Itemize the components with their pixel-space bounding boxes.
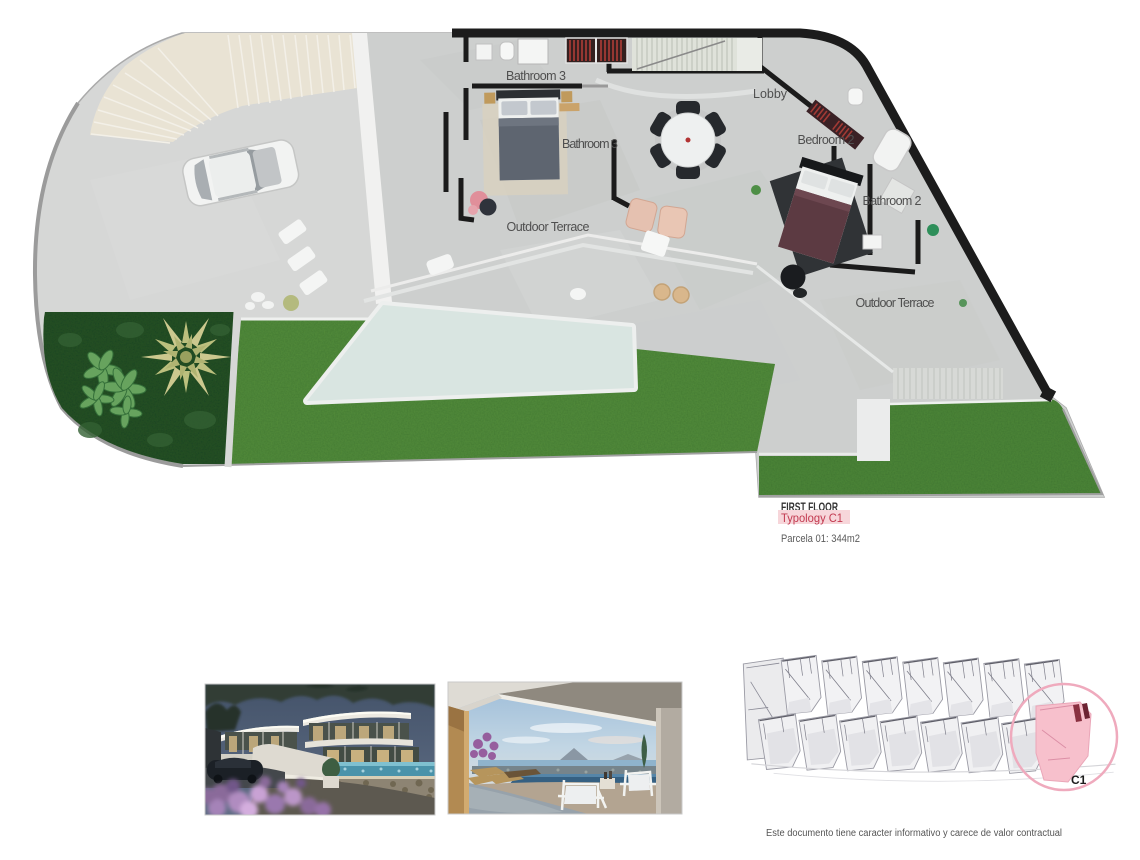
svg-text:C1: C1 [1071, 773, 1087, 787]
svg-text:Bathroom 3: Bathroom 3 [506, 69, 566, 83]
svg-text:Bathroom 3: Bathroom 3 [562, 137, 618, 151]
svg-text:Typology C1: Typology C1 [781, 511, 843, 525]
svg-text:Parcela 01: 344m2: Parcela 01: 344m2 [781, 533, 860, 545]
svg-text:Outdoor Terrace: Outdoor Terrace [507, 220, 590, 234]
svg-text:Bathroom 2: Bathroom 2 [863, 194, 922, 208]
svg-text:Este documento tiene caracter: Este documento tiene caracter informativ… [766, 828, 1062, 839]
svg-text:Outdoor Terrace: Outdoor Terrace [856, 296, 935, 310]
svg-text:Bedroom 2: Bedroom 2 [798, 133, 855, 147]
svg-text:Lobby: Lobby [753, 87, 788, 101]
